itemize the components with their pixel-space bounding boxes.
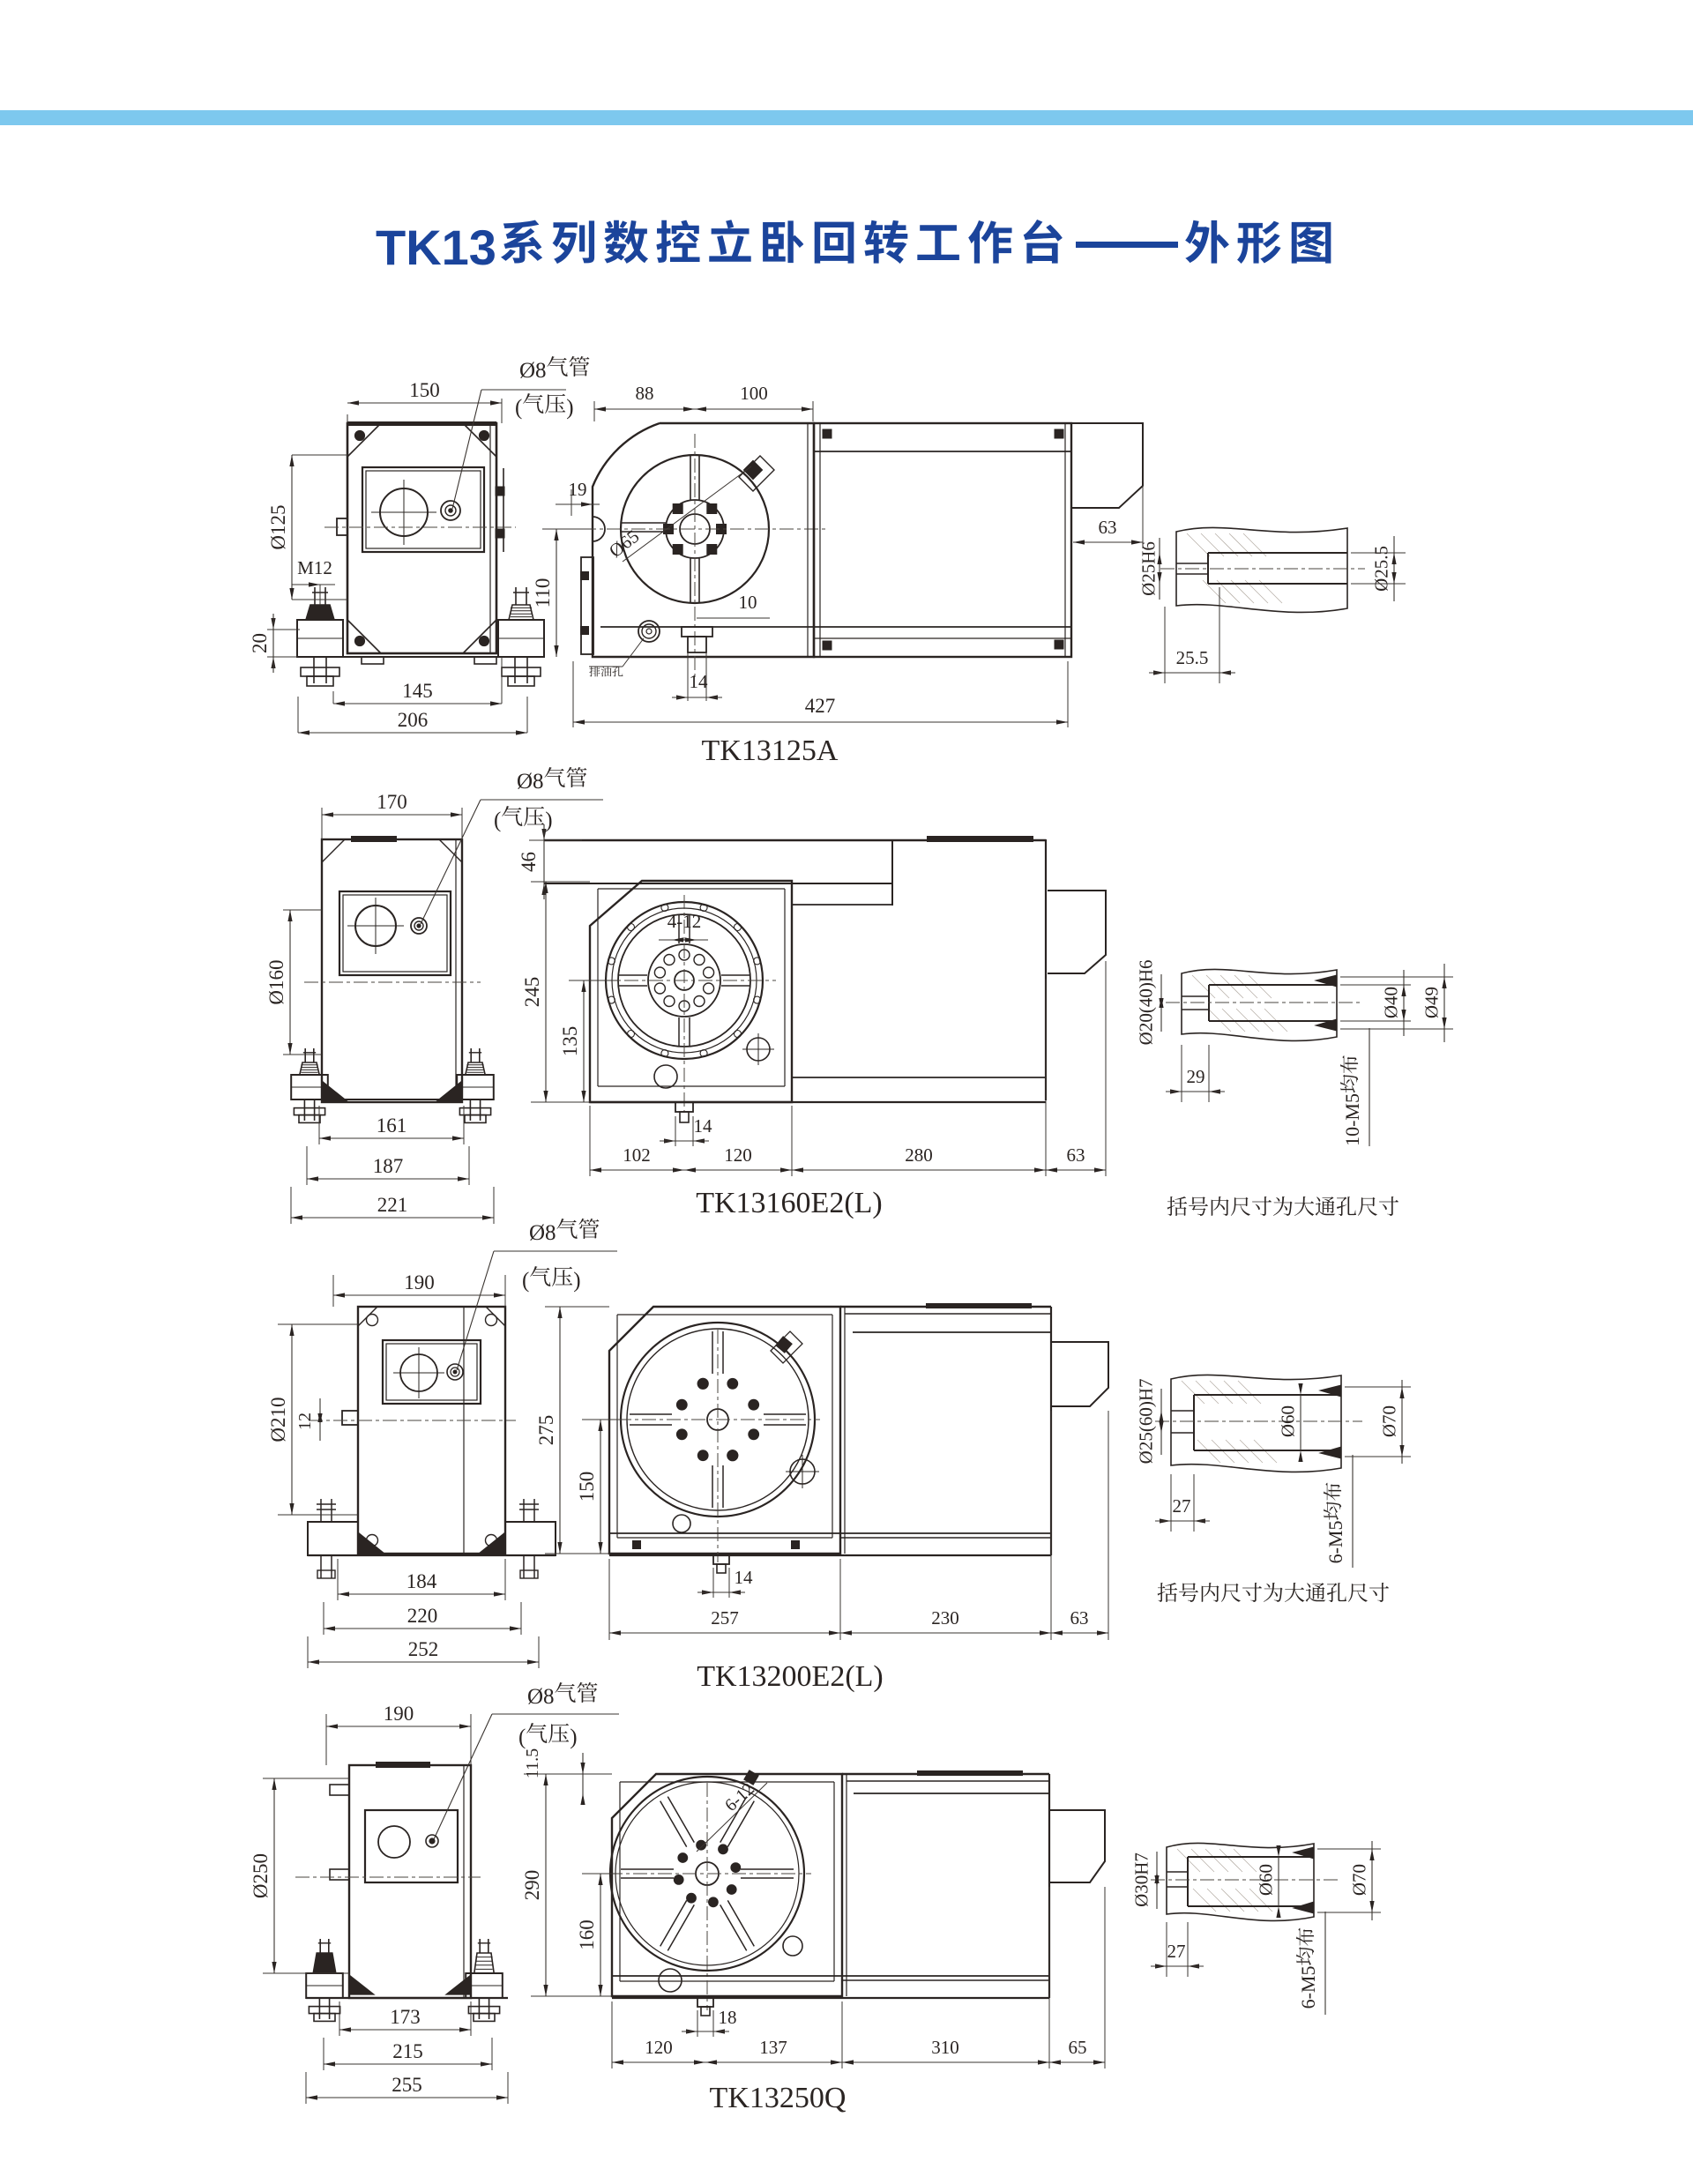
svg-text:206: 206 [398, 709, 429, 731]
svg-text:Ø160: Ø160 [265, 959, 287, 1004]
svg-text:Ø250: Ø250 [250, 1853, 272, 1898]
svg-text:14: 14 [690, 671, 709, 692]
svg-text:TK13125A: TK13125A [702, 734, 839, 767]
svg-text:(: ( [522, 1269, 529, 1293]
svg-text:190: 190 [404, 1271, 435, 1293]
svg-text:257: 257 [711, 1607, 739, 1629]
svg-text:255: 255 [392, 2074, 422, 2096]
svg-text:Ø25H6: Ø25H6 [1138, 541, 1160, 596]
svg-text:12: 12 [295, 1413, 315, 1430]
svg-text:Ø25.5: Ø25.5 [1371, 546, 1392, 592]
svg-text:Ø20(40)H6: Ø20(40)H6 [1136, 959, 1157, 1045]
svg-text:137: 137 [759, 2037, 787, 2058]
svg-text:Ø70: Ø70 [1379, 1405, 1400, 1437]
svg-text:): ) [566, 396, 573, 420]
svg-text:TK13250Q: TK13250Q [710, 2082, 846, 2114]
svg-text:63: 63 [1099, 517, 1117, 538]
svg-text:Ø60: Ø60 [1278, 1405, 1299, 1437]
svg-text:100: 100 [740, 383, 768, 404]
svg-text:25.5: 25.5 [1176, 647, 1209, 668]
svg-text:65: 65 [1069, 2037, 1087, 2058]
svg-text:88: 88 [636, 383, 654, 404]
svg-text:Ø210: Ø210 [267, 1397, 289, 1442]
svg-text:280: 280 [905, 1144, 933, 1166]
svg-text:20: 20 [249, 633, 271, 653]
svg-text:M12: M12 [297, 557, 332, 578]
svg-text:Ø49: Ø49 [1421, 987, 1443, 1018]
svg-text:120: 120 [645, 2037, 673, 2058]
svg-text:TK13160E2(L): TK13160E2(L) [696, 1187, 883, 1219]
svg-text:4-12: 4-12 [668, 911, 702, 932]
svg-text:27: 27 [1173, 1495, 1191, 1517]
svg-text:6-M5: 6-M5 [1324, 1521, 1346, 1564]
svg-text:220: 220 [407, 1605, 438, 1627]
svg-text:187: 187 [373, 1155, 404, 1177]
svg-text:135: 135 [559, 1026, 581, 1057]
svg-text:102: 102 [623, 1144, 651, 1166]
svg-text:(: ( [515, 396, 522, 420]
svg-text:27: 27 [1167, 1941, 1186, 1962]
svg-text:Ø30H7: Ø30H7 [1131, 1852, 1152, 1907]
svg-text:(: ( [494, 809, 501, 832]
svg-text:29: 29 [1187, 1066, 1205, 1087]
svg-text:63: 63 [1067, 1144, 1085, 1166]
svg-text:184: 184 [406, 1570, 437, 1592]
svg-text:14: 14 [694, 1115, 713, 1137]
svg-text:427: 427 [805, 695, 836, 717]
svg-text:275: 275 [535, 1415, 557, 1446]
svg-text:Ø8: Ø8 [527, 1685, 555, 1709]
svg-text:18: 18 [719, 2007, 737, 2028]
svg-text:Ø8: Ø8 [529, 1221, 556, 1245]
svg-text:Ø60: Ø60 [1256, 1864, 1277, 1896]
svg-text:): ) [573, 1269, 580, 1293]
svg-text:Ø70: Ø70 [1349, 1864, 1370, 1896]
svg-text:10: 10 [739, 592, 757, 613]
svg-text:(: ( [518, 1726, 526, 1749]
svg-text:10-M5: 10-M5 [1341, 1093, 1363, 1146]
svg-text:252: 252 [408, 1638, 439, 1660]
svg-text:310: 310 [931, 2037, 959, 2058]
svg-text:230: 230 [931, 1607, 959, 1629]
svg-text:): ) [570, 1726, 577, 1749]
svg-text:145: 145 [402, 680, 433, 702]
svg-text:14: 14 [735, 1567, 754, 1588]
svg-text:150: 150 [409, 379, 440, 401]
svg-text:): ) [545, 809, 552, 832]
svg-text:161: 161 [377, 1114, 407, 1137]
svg-text:Ø40: Ø40 [1381, 987, 1402, 1018]
svg-text:63: 63 [1070, 1607, 1089, 1629]
svg-text:173: 173 [390, 2006, 421, 2028]
svg-text:290: 290 [521, 1870, 543, 1901]
svg-text:190: 190 [384, 1703, 414, 1725]
svg-text:6-M5: 6-M5 [1297, 1966, 1319, 2009]
svg-text:160: 160 [576, 1919, 598, 1950]
svg-text:110: 110 [532, 578, 554, 608]
svg-text:Ø8: Ø8 [519, 359, 547, 383]
svg-text:46: 46 [518, 852, 540, 872]
svg-text:Ø125: Ø125 [267, 504, 289, 549]
svg-text:Ø8: Ø8 [517, 770, 544, 794]
svg-text:245: 245 [521, 977, 543, 1008]
svg-text:Ø25(60)H7: Ø25(60)H7 [1136, 1378, 1157, 1464]
svg-text:120: 120 [724, 1144, 752, 1166]
svg-text:170: 170 [377, 791, 407, 813]
svg-text:221: 221 [377, 1194, 408, 1216]
svg-text:150: 150 [576, 1472, 598, 1502]
svg-text:215: 215 [392, 2040, 423, 2062]
svg-text:19: 19 [569, 479, 587, 500]
svg-text:TK13200E2(L): TK13200E2(L) [697, 1660, 884, 1693]
svg-text:TK13: TK13 [376, 220, 496, 275]
